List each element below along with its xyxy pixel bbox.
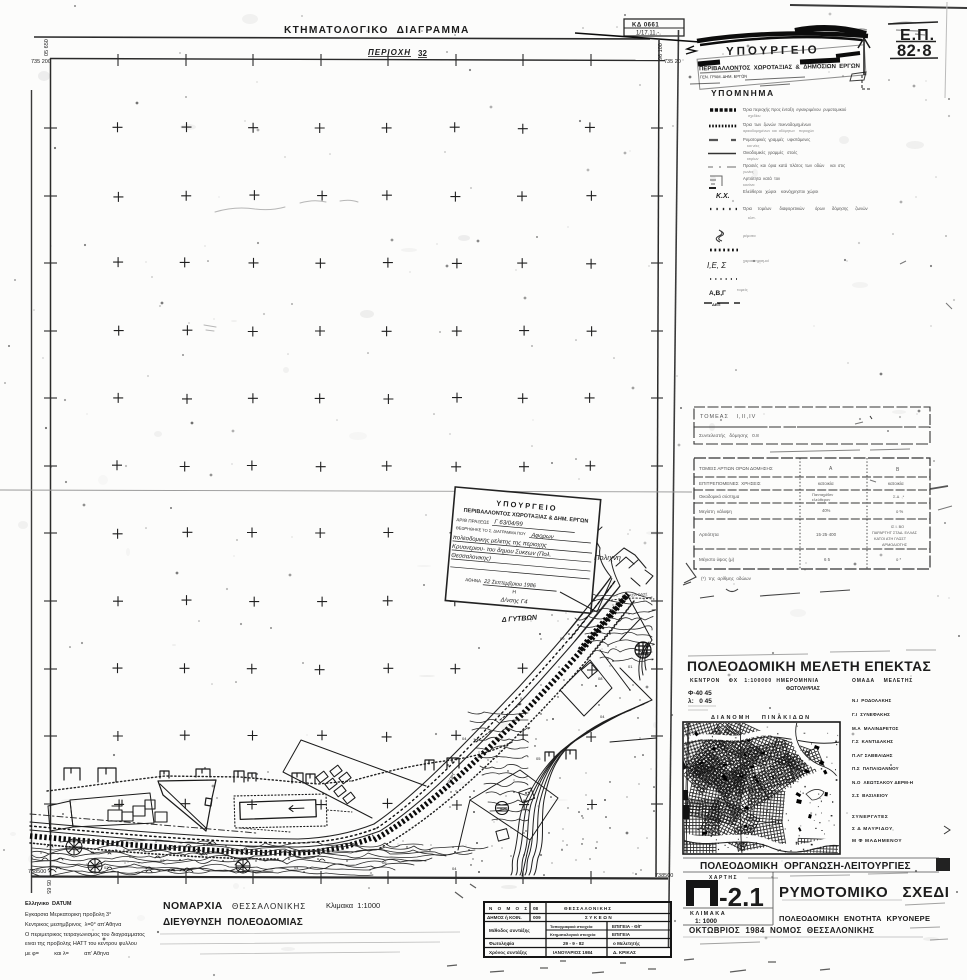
svg-text:04: 04 xyxy=(452,866,457,871)
svg-text:04: 04 xyxy=(462,736,467,741)
svg-text:ΚΑΤΟΙ ΑΤΗ ΓΛΩΣΤ: ΚΑΤΟΙ ΑΤΗ ΓΛΩΣΤ xyxy=(874,537,907,541)
svg-text:1/17.11.-.: 1/17.11.-. xyxy=(636,31,661,37)
svg-text:ΥΠΟΥΡΓΕΙΟ: ΥΠΟΥΡΓΕΙΟ xyxy=(726,44,820,58)
svg-text:40%: 40% xyxy=(822,508,831,513)
svg-text:κλπ.: κλπ. xyxy=(748,215,756,220)
svg-text:ΣΥΚΕΩΝ: ΣΥΚΕΩΝ xyxy=(585,915,613,920)
svg-text:αραιοδομημένων και αδόμητων: αραιοδομημένων και αδόμητων περιοχών xyxy=(743,129,814,133)
svg-text:χαρακτηρισμοί: χαρακτηρισμοί xyxy=(743,258,769,263)
svg-text:01: 01 xyxy=(628,664,633,669)
svg-text:ΘΕΣΣΑΛΟΝΙΚΗΣ: ΘΕΣΣΑΛΟΝΙΚΗΣ xyxy=(564,906,612,911)
svg-text:05 650: 05 650 xyxy=(44,39,50,56)
svg-text:738500: 738500 xyxy=(655,873,673,879)
svg-text:ΕΠΙΤΡΕΠΟΜΕΝΕΣ ΧΡΗΣΕΙΣ: ΕΠΙΤΡΕΠΟΜΕΝΕΣ ΧΡΗΣΕΙΣ xyxy=(699,481,761,486)
svg-text:Δ. ΚΡΙΚΑΣ: Δ. ΚΡΙΚΑΣ xyxy=(613,950,636,955)
svg-text:6 5: 6 5 xyxy=(824,557,831,562)
svg-text:735 200: 735 200 xyxy=(31,59,51,65)
svg-text:ελεύθερον: ελεύθερον xyxy=(812,497,830,502)
svg-text:ΡΥΜΟΤΟΜΙΚΟ ΣΧΕΔΙ: ΡΥΜΟΤΟΜΙΚΟ ΣΧΕΔΙ xyxy=(779,884,949,901)
svg-text:Φ·40 45: Φ·40 45 xyxy=(688,690,712,697)
svg-text:ΓΕΝ. ΓΡΑΜ. ΔΗΜ. ΕΡΓΩΝ: ΓΕΝ. ΓΡΑΜ. ΔΗΜ. ΕΡΓΩΝ xyxy=(700,74,747,80)
svg-text:ΑΡΜΟΔΙΟΤΗΣ: ΑΡΜΟΔΙΟΤΗΣ xyxy=(882,543,908,547)
svg-text:ΣΥΝΕΡΓΑΤΕΣ: ΣΥΝΕΡΓΑΤΕΣ xyxy=(852,814,888,820)
svg-text:σχεδίου: σχεδίου xyxy=(748,114,761,118)
svg-text:Τοπογραφικά στοιχεία: Τοπογραφικά στοιχεία xyxy=(550,924,593,929)
svg-text:λ: 0 45: λ: 0 45 xyxy=(688,697,712,705)
svg-text:γωνίες: γωνίες xyxy=(743,170,754,174)
svg-text:05: 05 xyxy=(536,756,541,761)
svg-text:04: 04 xyxy=(294,865,299,870)
svg-text:ΟΚΤΩΒΡΙΟΣ 1984 ΝΟΜΟΣ ΘΕΣΣΑΛ: ΟΚΤΩΒΡΙΟΣ 1984 ΝΟΜΟΣ ΘΕΣΣΑΛΟΝΙΚΗΣ xyxy=(689,926,874,935)
svg-text:ΠΑΡΑΡΤΗΤ ΣΤΑΔ. ΕΛΛΑΣ: ΠΑΡΑΡΤΗΤ ΣΤΑΔ. ΕΛΛΑΣ xyxy=(872,531,918,535)
svg-text:Μεγίστη κάλυψη: Μεγίστη κάλυψη xyxy=(699,509,732,514)
svg-text:κτιρίων: κτιρίων xyxy=(747,157,759,161)
svg-text:009: 009 xyxy=(533,915,541,920)
svg-text:ΤΟΜΕΑΣ Ι,ΙΙ,ΙV: ΤΟΜΕΑΣ Ι,ΙΙ,ΙV xyxy=(700,414,756,420)
svg-text:ΚΔ 0661: ΚΔ 0661 xyxy=(632,23,659,29)
svg-text:Κτηματολογικά στοιχεία: Κτηματολογικά στοιχεία xyxy=(550,932,596,937)
svg-text:29 - 9 - 82: 29 - 9 - 82 xyxy=(563,941,584,946)
svg-text:Κλιμακα 1:1000: Κλιμακα 1:1000 xyxy=(326,901,380,910)
svg-text:Γ.Σ ΚΑΝΤΙΔΑΚΗΣ: Γ.Σ ΚΑΝΤΙΔΑΚΗΣ xyxy=(852,739,893,744)
svg-text:32: 32 xyxy=(418,49,427,58)
svg-text:Αρτιότητα: Αρτιότητα xyxy=(699,531,719,537)
svg-text:Ρυμοτομικές γραμμές υφιστάμ: Ρυμοτομικές γραμμές υφιστάμενες xyxy=(743,137,810,142)
svg-text:ΘΕΣΣΑΛΟΝΙΚΗΣ: ΘΕΣΣΑΛΟΝΙΚΗΣ xyxy=(232,902,306,911)
svg-text:Αρτιότητα κατά τον: Αρτιότητα κατά τον xyxy=(743,176,780,181)
svg-text:Ελεύθεροι χώροι κοινόχρησ: Ελεύθεροι χώροι κοινόχρηστοι χώροι xyxy=(743,189,818,194)
svg-text:Οικοδομικές γραμμές στοές: Οικοδομικές γραμμές στοές xyxy=(743,150,797,155)
svg-text:Π.ΑΓ ΣΑΒΒΑΙΔΗΣ: Π.ΑΓ ΣΑΒΒΑΙΔΗΣ xyxy=(852,753,893,758)
svg-text:και νέες: και νέες xyxy=(747,144,760,148)
svg-text:03: 03 xyxy=(352,842,357,847)
svg-text:Κεντρικος μεσημβρινος λ=0° απ: Κεντρικος μεσημβρινος λ=0° απ’Αθηνα xyxy=(25,922,122,928)
svg-text:Μ.Α ΜΑΛΙΝΔΡΕΤΟΣ: Μ.Α ΜΑΛΙΝΔΡΕΤΟΣ xyxy=(852,726,899,731)
svg-text:1: 1000: 1: 1000 xyxy=(695,918,717,925)
svg-text:Μέγιστο ύψος (μ): Μέγιστο ύψος (μ) xyxy=(699,556,735,562)
svg-text:06: 06 xyxy=(382,860,387,865)
svg-text:ΕΠΙΓΕΙΑ: ΕΠΙΓΕΙΑ xyxy=(612,932,631,937)
svg-text:Ν.Ι ΡΟΔΟΛΑΚΗΣ: Ν.Ι ΡΟΔΟΛΑΚΗΣ xyxy=(852,698,891,703)
svg-text:ΔΕΠ: ΔΕΠ xyxy=(712,302,721,307)
svg-text:Ελληνικο DATUM: Ελληνικο DATUM xyxy=(25,901,72,907)
svg-text:κανόνα: κανόνα xyxy=(743,183,755,187)
svg-text:ΙΑΝΟΥΑΡΙΟΣ 1984: ΙΑΝΟΥΑΡΙΟΣ 1984 xyxy=(553,950,593,955)
svg-text:05 65: 05 65 xyxy=(45,880,51,894)
svg-text:Ο περιμετρικος τετραγωνισμος τ: Ο περιμετρικος τετραγωνισμος του διαγραμ… xyxy=(25,932,145,938)
svg-text:04: 04 xyxy=(600,714,605,719)
svg-text:15·25·400: 15·25·400 xyxy=(816,532,837,537)
svg-text:ΠΕΡΙΟΧΗ: ΠΕΡΙΟΧΗ xyxy=(368,48,411,57)
svg-text:Πρασιές και όρια κατά πλάτ: Πρασιές και όρια κατά πλάτος των οδών κα… xyxy=(743,163,845,168)
svg-text:ΔΙΕΥΘΥΝΣΗ ΠΟΛΕΟΔΟΜΙΑΣ: ΔΙΕΥΘΥΝΣΗ ΠΟΛΕΟΔΟΜΙΑΣ xyxy=(163,917,303,928)
svg-text:738500: 738500 xyxy=(28,869,46,875)
svg-text:Α,Β,Γ: Α,Β,Γ xyxy=(709,290,726,297)
svg-text:Εγκαρσια Μερκατορικη προβολη 3: Εγκαρσια Μερκατορικη προβολη 3° xyxy=(25,912,111,918)
svg-text:08: 08 xyxy=(598,676,603,681)
svg-text:Ν.Ο ΛΕΩΤΣΑΚΟΥ ΔΕΡΜ-Η: Ν.Ο ΛΕΩΤΣΑΚΟΥ ΔΕΡΜ-Η xyxy=(852,780,913,785)
svg-text:ΠΟΛΕΟΔΟΜΙΚΗ ΟΡΓΑΝΩΣΗ-ΛΕΙΤΟΥΡΓ: ΠΟΛΕΟΔΟΜΙΚΗ ΟΡΓΑΝΩΣΗ-ΛΕΙΤΟΥΡΓΙΕΣ xyxy=(700,861,911,872)
svg-text:Οικοδομικό σύστημα: Οικοδομικό σύστημα xyxy=(699,494,740,499)
svg-text:08: 08 xyxy=(533,906,539,911)
svg-text:ΙΣ Ι. ΒΟ: ΙΣ Ι. ΒΟ xyxy=(891,525,904,529)
svg-text:82·8: 82·8 xyxy=(897,42,932,60)
svg-text:ΦΩΤΟΛΗΨΙΑΣ: ΦΩΤΟΛΗΨΙΑΣ xyxy=(786,686,820,692)
svg-text:ΔΗΜΟΣ ή ΚΟΙΝ.: ΔΗΜΟΣ ή ΚΟΙΝ. xyxy=(487,915,522,920)
svg-text:Όρια τομέων διαφορετ: Όρια τομέων διαφορετικών όρων δόμησης ζω… xyxy=(742,206,868,211)
svg-text:Σ Δ ΜΑΥΡΙΔΟΥ: Σ Δ ΜΑΥΡΙΔΟΥ xyxy=(852,826,893,832)
svg-text:Φωτοληψία: Φωτοληψία xyxy=(489,941,514,946)
svg-text:(*) της αρίθμης οδώων: (*) της αρίθμης οδώων xyxy=(701,575,752,581)
svg-text:ειναι της προβολης ΗΑΤΤ του κε: ειναι της προβολης ΗΑΤΤ του κεντρου φυλλ… xyxy=(25,941,137,947)
svg-text:ΚΛΙΜΑΚΑ: ΚΛΙΜΑΚΑ xyxy=(690,911,726,917)
svg-text:Μ Φ ΜΑΔΗΜΕΝΟΥ: Μ Φ ΜΑΔΗΜΕΝΟΥ xyxy=(852,838,902,844)
svg-text:ο %: ο % xyxy=(896,509,903,514)
svg-text:ο *: ο * xyxy=(896,557,901,562)
svg-text:ΠΟΛΕΟΔΟΜΙΚΗ ΕΝΟΤΗΤΑ ΚΡΥΟΝΕΡΕ: ΠΟΛΕΟΔΟΜΙΚΗ ΕΝΟΤΗΤΑ ΚΡΥΟΝΕΡΕ xyxy=(779,914,930,923)
svg-text:Ν Ο Μ Ο Σ: Ν Ο Μ Ο Σ xyxy=(489,906,529,911)
svg-text:09: 09 xyxy=(560,636,565,641)
svg-text:Π.Σ ΠΑΠΑΙΩΑΝΝΟΥ: Π.Σ ΠΑΠΑΙΩΑΝΝΟΥ xyxy=(852,766,899,771)
svg-text:ΚΕΝΤΡΟΝ ΦΧ 1:100000 ΗΜΕΡ: ΚΕΝΤΡΟΝ ΦΧ 1:100000 ΗΜΕΡΟΜΗΝΙΑ xyxy=(690,678,819,684)
svg-text:ΝΟΜΑΡΧΙΑ: ΝΟΜΑΡΧΙΑ xyxy=(163,900,223,912)
svg-text:ΔΙΑΝΟΜΗ ΠΙΝΑΚΙΔΩΝ: ΔΙΑΝΟΜΗ ΠΙΝΑΚΙΔΩΝ xyxy=(711,715,811,721)
svg-text:Σ.Δ ,*: Σ.Δ ,* xyxy=(893,494,905,499)
svg-text:Συντελεστής δόμησης 0.8: Συντελεστής δόμησης 0.8 xyxy=(699,432,759,439)
svg-text:02: 02 xyxy=(104,865,109,870)
svg-text:ΥΠΟΜΝΗΜΑ: ΥΠΟΜΝΗΜΑ xyxy=(711,88,775,98)
svg-text:Γ.Ι ΣΥΝΕΦΑΚΗΣ: Γ.Ι ΣΥΝΕΦΑΚΗΣ xyxy=(852,712,890,717)
svg-text:ΚΤΗΜΑΤΟΛΟΓΙΚΟ ΔΙΑΓΡΑΜΜΑ: ΚΤΗΜΑΤΟΛΟΓΙΚΟ ΔΙΑΓΡΑΜΜΑ xyxy=(284,25,470,36)
svg-text:Πολιχνη: Πολιχνη xyxy=(594,553,621,562)
svg-text:ΠΟΛΕΟΔΟΜΙΚΗ ΜΕΛΕΤΗ ΕΠΕΚΤΑΣ: ΠΟΛΕΟΔΟΜΙΚΗ ΜΕΛΕΤΗ ΕΠΕΚΤΑΣ xyxy=(687,659,931,674)
svg-text:με φ= και λ=: με φ= και λ= απ’ Αθηνα xyxy=(25,951,110,957)
svg-text:κατοικία: κατοικία xyxy=(818,481,834,486)
svg-text:03: 03 xyxy=(160,858,165,863)
svg-text:ρέματα: ρέματα xyxy=(743,233,756,238)
svg-text:ΟΜΑΔΑ ΜΕΛΕΤΗΣ: ΟΜΑΔΑ ΜΕΛΕΤΗΣ xyxy=(852,678,913,684)
svg-text:Όρια περιοχής προς ένταξη εγκ: Όρια περιοχής προς ένταξη εγκεκριμένου ρ… xyxy=(742,107,847,112)
svg-text:Ι,Ε, Σ: Ι,Ε, Σ xyxy=(707,261,727,270)
svg-text:Όρια των ζωνών πυκνοδομημέν: Όρια των ζωνών πυκνοδομημένων xyxy=(742,122,811,127)
svg-text:κατοικία: κατοικία xyxy=(888,481,904,486)
svg-text:τομείς: τομείς xyxy=(737,287,748,292)
svg-text:ΤΟΜΕΙΣ ΑΡΤΙΩΝ ΟΡΩΝ ΔΟΜΗΣΗΣ: ΤΟΜΕΙΣ ΑΡΤΙΩΝ ΟΡΩΝ ΔΟΜΗΣΗΣ xyxy=(699,466,773,471)
svg-text:ΕΠΙΓΕΙΑ - Θ/Γ: ΕΠΙΓΕΙΑ - Θ/Γ xyxy=(612,924,642,929)
svg-text:Σ.Σ ΒΑΣΙΛΕΙΟΥ: Σ.Σ ΒΑΣΙΛΕΙΟΥ xyxy=(852,793,888,798)
svg-text:Κ.Χ.: Κ.Χ. xyxy=(716,193,730,200)
